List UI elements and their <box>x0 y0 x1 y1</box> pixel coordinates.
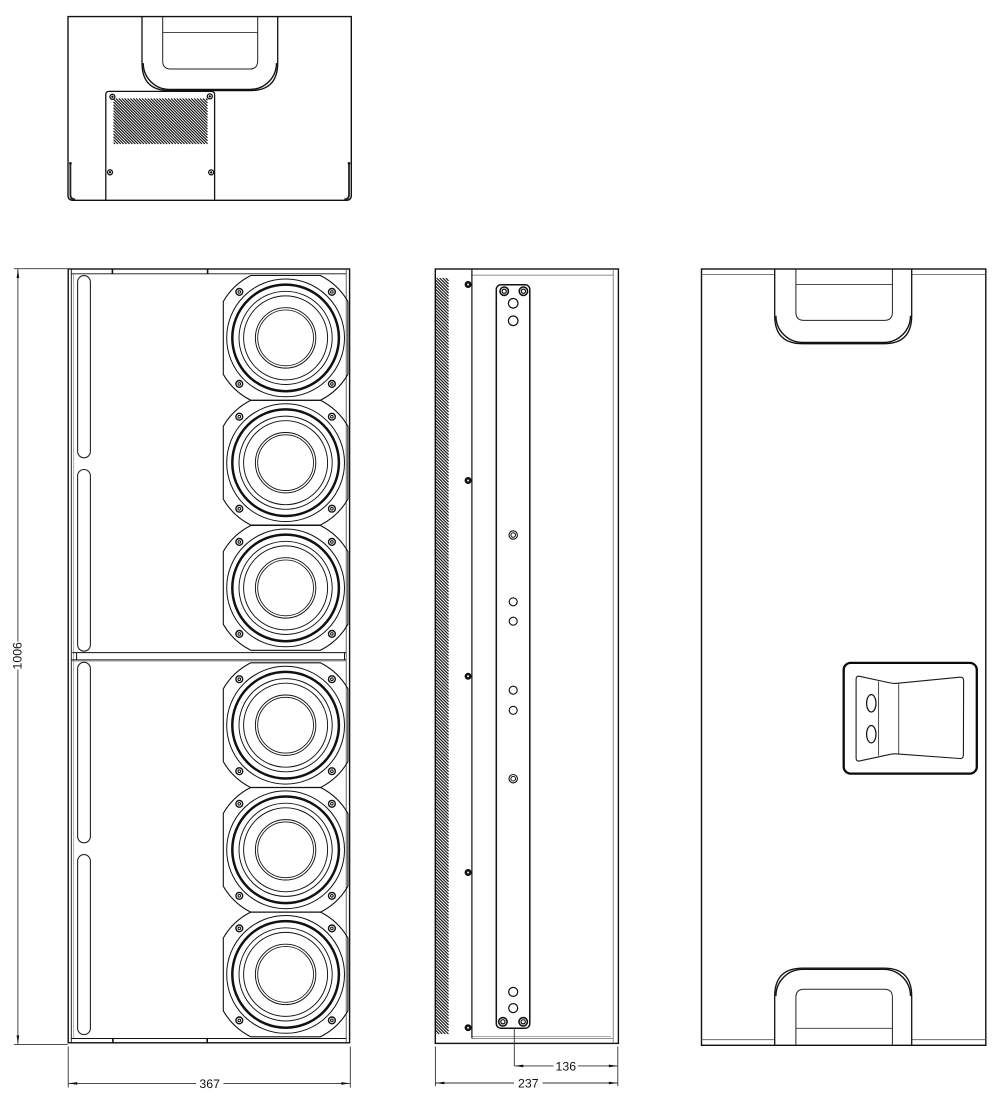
svg-text:136: 136 <box>556 1059 577 1073</box>
svg-text:1006: 1006 <box>11 642 25 670</box>
svg-text:237: 237 <box>518 1076 539 1090</box>
svg-text:367: 367 <box>199 1077 220 1091</box>
